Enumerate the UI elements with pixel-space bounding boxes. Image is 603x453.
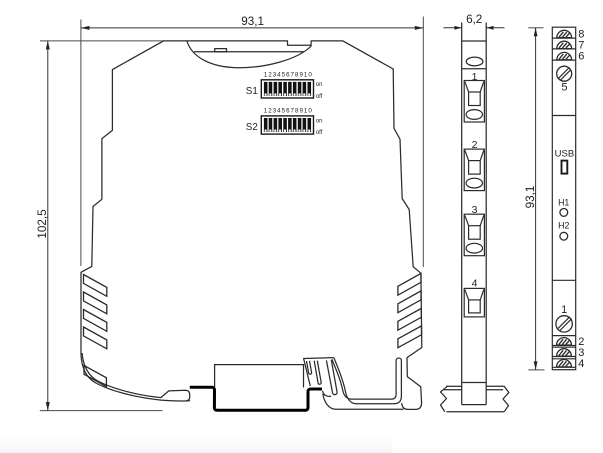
svg-text:off: off (316, 130, 323, 136)
svg-text:H2: H2 (558, 221, 569, 231)
svg-text:93,1: 93,1 (241, 15, 264, 28)
svg-text:4: 4 (578, 358, 584, 370)
svg-text:on: on (316, 118, 323, 124)
svg-text:6: 6 (578, 50, 584, 62)
svg-text:S2: S2 (246, 122, 258, 133)
svg-text:USB: USB (555, 148, 575, 159)
svg-text:6,2: 6,2 (466, 13, 482, 26)
svg-text:5: 5 (561, 82, 567, 94)
svg-text:on: on (316, 82, 323, 88)
svg-text:93,1: 93,1 (524, 186, 537, 209)
svg-text:off: off (316, 94, 323, 100)
svg-text:1: 1 (561, 304, 567, 316)
svg-text:12345678910: 12345678910 (264, 71, 313, 78)
svg-text:102,5: 102,5 (36, 209, 49, 239)
svg-text:S1: S1 (246, 86, 258, 97)
svg-text:H1: H1 (558, 198, 569, 208)
svg-text:12345678910: 12345678910 (264, 108, 313, 115)
